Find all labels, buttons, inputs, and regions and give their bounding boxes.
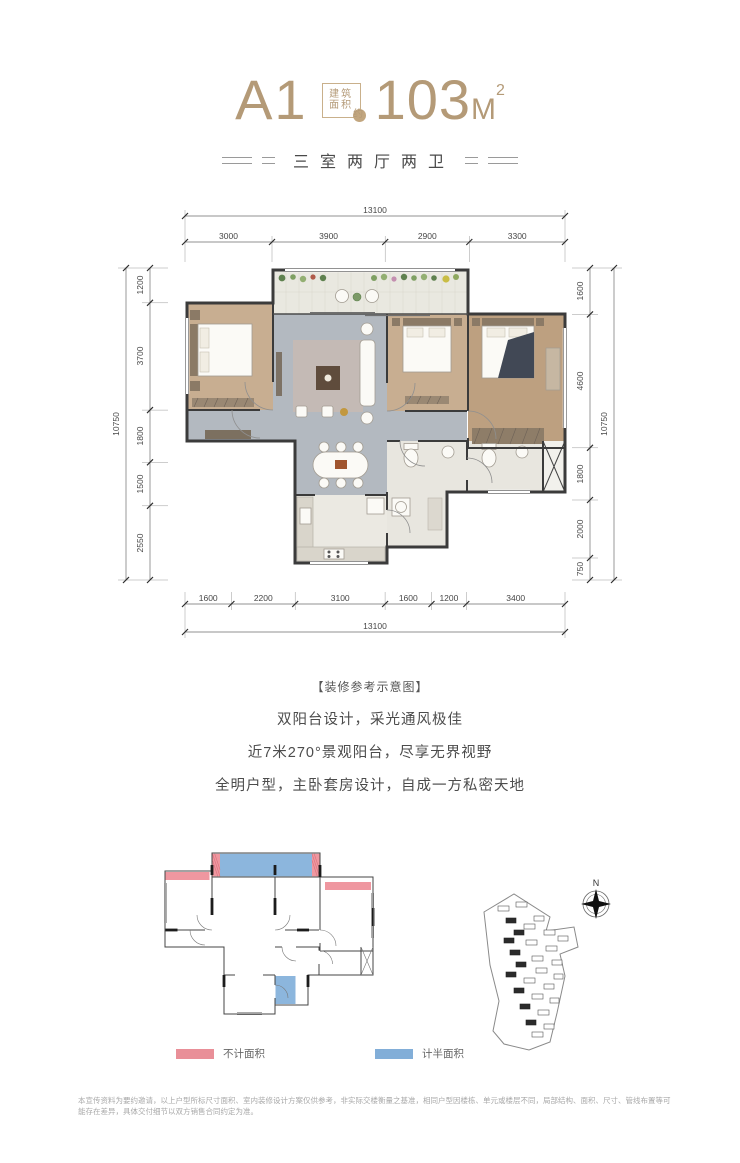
north-compass-icon: N	[581, 878, 611, 919]
dim-label: 10750	[111, 412, 121, 436]
foyer-cabinet	[205, 430, 251, 439]
dim-label: 13100	[363, 205, 387, 215]
floorplan-flyer: A1 建筑 面积 约 103M2 三室两厅两卫 13100	[0, 0, 740, 1163]
unit-name: A1	[235, 72, 308, 128]
feature-line: 双阳台设计，采光通风极佳	[0, 704, 740, 737]
area-superscript: 2	[496, 82, 505, 99]
subtitle-block: 三室两厅两卫	[0, 148, 740, 172]
area-calculation-diagram	[142, 838, 402, 1033]
badge-line2: 面积	[329, 100, 353, 112]
dim-label: 1600	[575, 281, 585, 300]
dim-label: 2200	[254, 593, 273, 603]
half-area-swatch	[375, 1049, 413, 1059]
feature-line: 近7米270°景观阳台，尽享无界视野	[0, 737, 740, 770]
plan-caption: 【装修参考示意图】	[0, 678, 740, 695]
area-value: 103	[375, 68, 471, 131]
dimensions-left: 1200 3700 1800 1500 2550 10750	[111, 265, 153, 583]
deco-line-icon	[262, 157, 275, 164]
dim-label: 1500	[135, 474, 145, 493]
dimensions-bottom: 1600 2200 3100 1600 1200 3400 13100	[182, 593, 568, 635]
dim-label: 10750	[599, 412, 609, 436]
approx-circle-icon: 约	[353, 109, 366, 122]
dim-label: 3000	[219, 231, 238, 241]
legend-item-excluded: 不计面积	[176, 1046, 265, 1061]
dim-label: 4600	[575, 371, 585, 390]
area-value-group: 103M2	[375, 72, 505, 128]
dim-label: 1200	[135, 275, 145, 294]
feature-line: 全明户型，主卧套房设计，自成一方私密天地	[0, 770, 740, 803]
dim-label: 1800	[575, 464, 585, 483]
excluded-area-label: 不计面积	[223, 1046, 265, 1061]
deco-line-icon	[465, 157, 478, 164]
dim-label: 2550	[135, 533, 145, 552]
dim-label: 1800	[135, 426, 145, 445]
north-label: N	[593, 878, 600, 888]
schematic-windows	[165, 883, 374, 1015]
dim-label: 750	[575, 562, 585, 576]
dim-label: 3300	[508, 231, 527, 241]
deco-line-icon	[222, 157, 252, 164]
dim-label: 3900	[319, 231, 338, 241]
built-area-badge: 建筑 面积 约	[322, 83, 361, 118]
layout-subtitle: 三室两厅两卫	[293, 148, 455, 172]
feature-list: 双阳台设计，采光通风极佳 近7米270°景观阳台，尽享无界视野 全明户型，主卧套…	[0, 704, 740, 803]
dim-label: 1600	[399, 593, 418, 603]
dimensions-top: 13100 3000 3900 2900 3300	[182, 205, 568, 245]
dim-label: 2900	[418, 231, 437, 241]
title-block: A1 建筑 面积 约 103M2	[0, 72, 740, 128]
area-legend: 不计面积 计半面积	[176, 1046, 464, 1061]
floor-plan-rendering: 13100 3000 3900 2900 3300 1600 2200 3100…	[110, 200, 630, 655]
dim-label: 13100	[363, 621, 387, 631]
legend-item-half: 计半面积	[375, 1046, 464, 1061]
area-unit: M	[471, 93, 496, 126]
schematic-door-arcs	[190, 915, 336, 998]
dim-label: 3100	[331, 593, 350, 603]
dim-label: 1600	[199, 593, 218, 603]
dim-label: 2000	[575, 519, 585, 538]
excluded-area-swatch	[176, 1049, 214, 1059]
dim-label: 3700	[135, 346, 145, 365]
site-plan: N	[462, 868, 662, 1083]
dim-label: 1200	[439, 593, 458, 603]
deco-line-icon	[488, 157, 518, 164]
dimensions-right: 1600 4600 1800 2000 750 10750	[575, 265, 617, 583]
half-area-label: 计半面积	[422, 1046, 464, 1061]
badge-line1: 建筑	[329, 89, 353, 101]
dim-label: 3400	[506, 593, 525, 603]
dining-furniture	[313, 442, 368, 488]
disclaimer-text: 本宣传资料为要约邀请，以上户型所标尺寸面积、室内装修设计方案仅供参考，非实际交楼…	[78, 1095, 674, 1117]
site-boundary	[484, 894, 578, 1050]
